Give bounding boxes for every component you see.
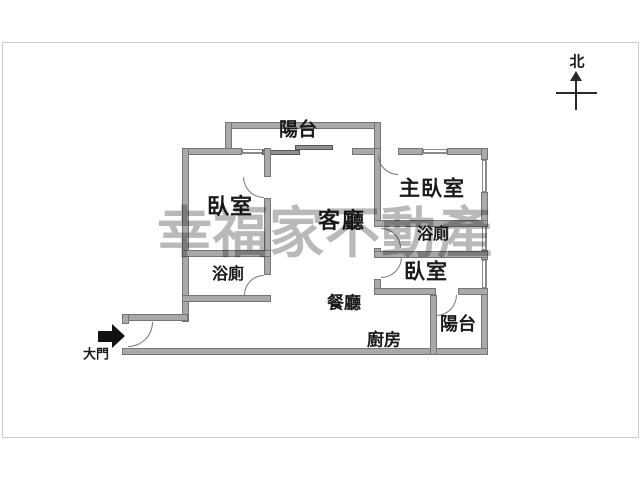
floor-plan-image: 陽台 臥室 客廳 主臥室 浴廁 臥室 浴廁 餐廳 廚房 陽台 大門 北 幸福家不…	[0, 0, 640, 480]
window	[423, 149, 447, 154]
room-label-balcony-bottom: 陽台	[440, 316, 476, 334]
wall	[481, 148, 488, 160]
wall	[182, 295, 271, 302]
compass-crossbar	[556, 92, 597, 94]
wall	[264, 148, 271, 177]
wall	[481, 288, 488, 355]
wall	[458, 288, 488, 295]
wall	[398, 148, 423, 155]
room-label-master-bedroom: 主臥室	[399, 179, 465, 200]
entry-arrow-head-icon	[112, 324, 125, 348]
north-label: 北	[569, 55, 584, 70]
room-label-kitchen: 廚房	[367, 333, 401, 350]
sliding-door-panel	[295, 145, 333, 150]
entry-label: 大門	[83, 349, 109, 362]
agency-watermark: 幸福家不動產	[157, 206, 493, 261]
room-label-dining-room: 餐廳	[327, 296, 361, 313]
wall	[374, 288, 436, 295]
wall	[182, 148, 242, 155]
window	[242, 149, 264, 154]
entry-arrow-icon	[98, 331, 112, 342]
wall	[225, 122, 232, 149]
room-label-balcony-top: 陽台	[279, 121, 317, 140]
window	[482, 160, 487, 192]
compass-line	[575, 79, 577, 110]
room-label-bathroom-left: 浴廁	[212, 266, 244, 282]
wall	[374, 122, 381, 149]
wall	[122, 314, 188, 321]
